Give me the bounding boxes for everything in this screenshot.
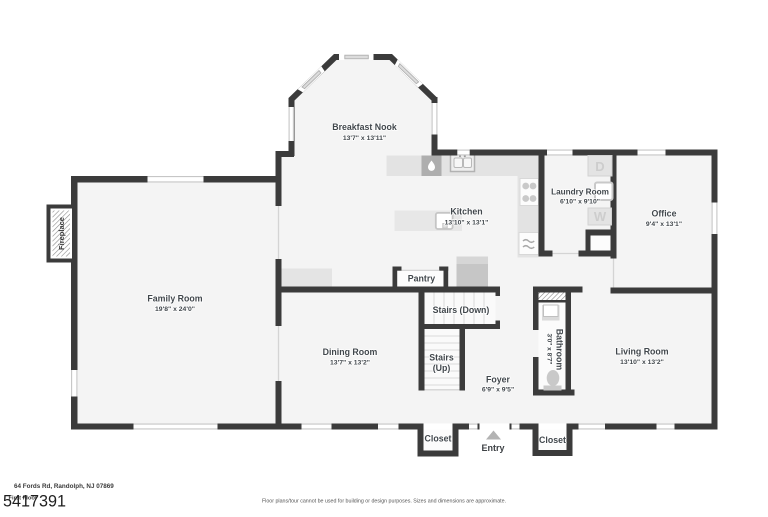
svg-text:Stairs: Stairs — [429, 353, 454, 363]
svg-text:Entry: Entry — [481, 443, 504, 453]
svg-text:6'10" x 9'10": 6'10" x 9'10" — [560, 199, 600, 206]
svg-text:Stairs (Down): Stairs (Down) — [433, 305, 490, 315]
svg-text:Fireplace: Fireplace — [57, 217, 66, 250]
svg-text:13'10" x 13'2": 13'10" x 13'2" — [620, 359, 664, 366]
svg-text:D: D — [595, 159, 604, 174]
svg-text:Breakfast Nook: Breakfast Nook — [332, 122, 397, 132]
svg-text:64 Fords Rd, Randolph, NJ 0786: 64 Fords Rd, Randolph, NJ 07869 — [14, 483, 114, 490]
svg-text:13'7" x 13'11": 13'7" x 13'11" — [343, 135, 386, 142]
svg-text:Bathroom: Bathroom — [554, 329, 564, 371]
svg-text:Foyer: Foyer — [486, 375, 511, 385]
svg-text:Closet: Closet — [425, 434, 452, 444]
svg-text:Family Room: Family Room — [147, 294, 202, 304]
svg-text:6'9" x 9'5": 6'9" x 9'5" — [482, 387, 514, 394]
svg-text:Office: Office — [652, 209, 677, 219]
svg-text:(Up): (Up) — [433, 363, 451, 373]
svg-text:3'0" x 8'7": 3'0" x 8'7" — [546, 334, 553, 365]
svg-text:W: W — [594, 209, 607, 224]
svg-text:Pantry: Pantry — [408, 274, 435, 284]
svg-text:Living Room: Living Room — [615, 347, 668, 357]
svg-text:13'10" x 13'1": 13'10" x 13'1" — [445, 220, 489, 227]
svg-text:13'7" x 13'2": 13'7" x 13'2" — [330, 360, 370, 367]
svg-text:19'8" x 24'0": 19'8" x 24'0" — [155, 306, 195, 313]
svg-text:Kitchen: Kitchen — [450, 207, 482, 217]
svg-text:Dining Room: Dining Room — [323, 347, 378, 357]
svg-text:9'4" x 13'1": 9'4" x 13'1" — [646, 221, 682, 228]
svg-text:Closet: Closet — [539, 435, 566, 445]
svg-text:5417391: 5417391 — [3, 493, 66, 511]
svg-text:Laundry Room: Laundry Room — [551, 188, 609, 197]
svg-text:Floor plans/tour cannot be use: Floor plans/tour cannot be used for buil… — [262, 499, 506, 505]
